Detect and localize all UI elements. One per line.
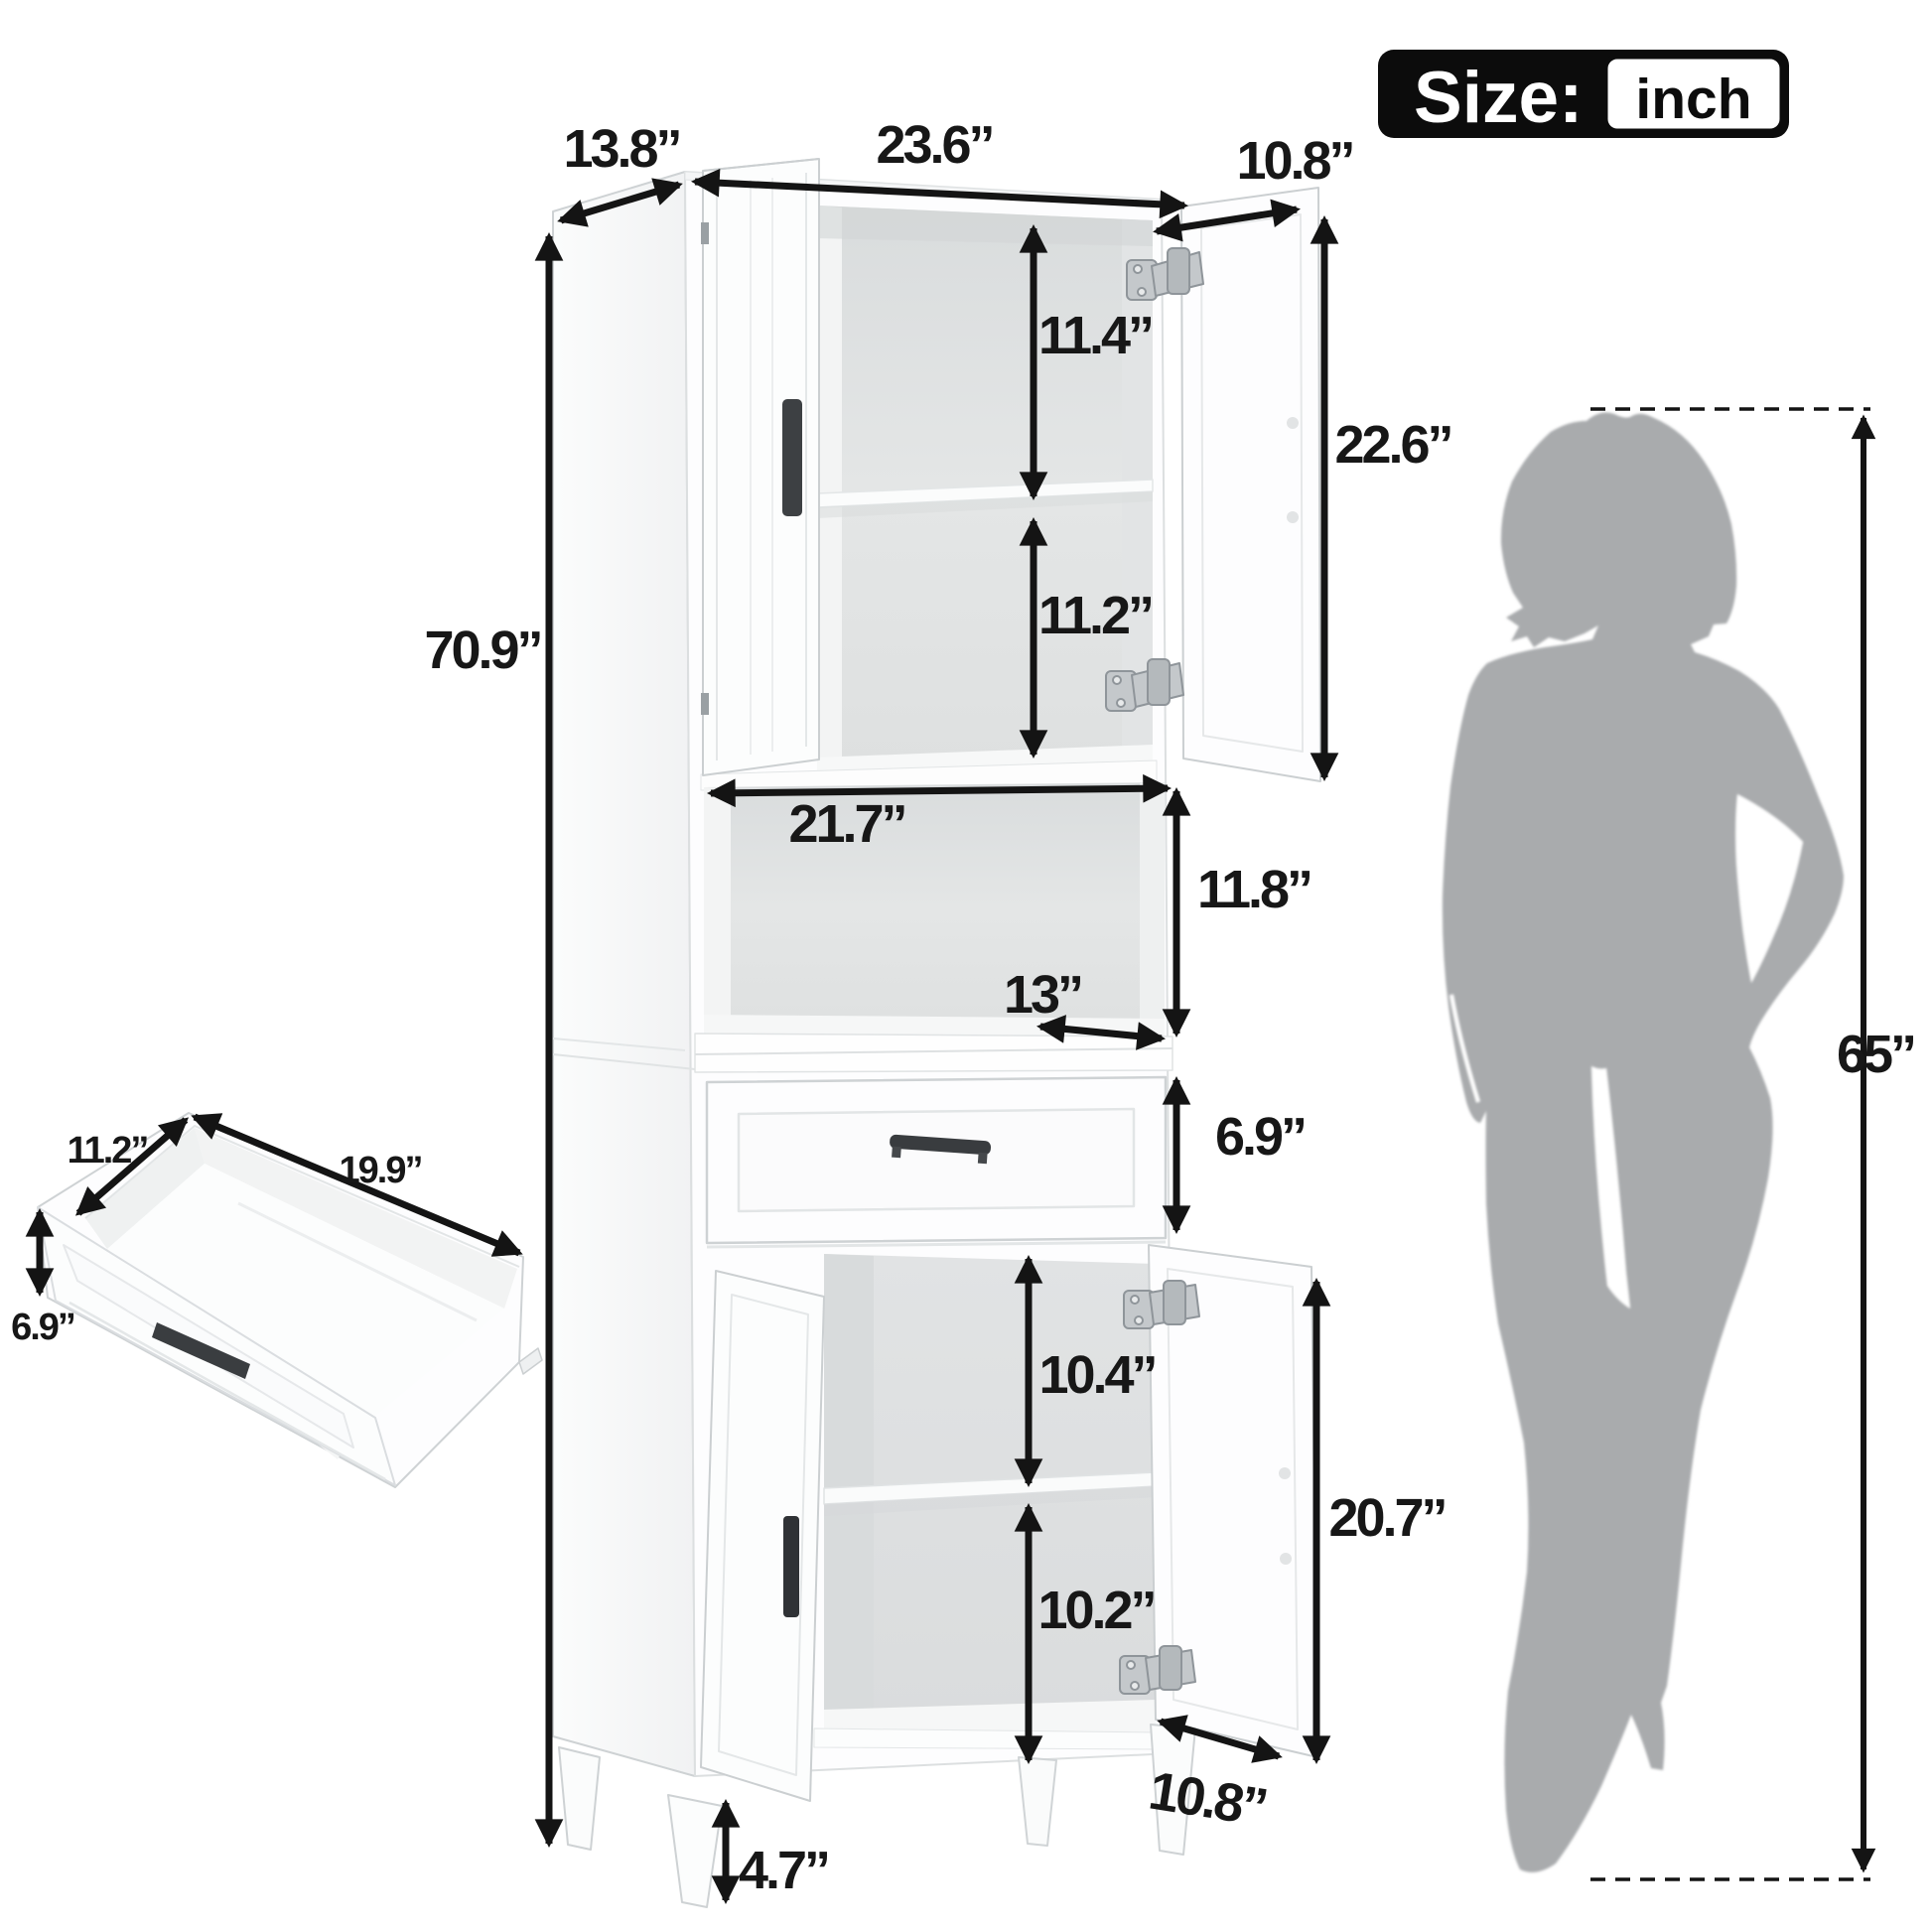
svg-text:4.7”: 4.7” <box>739 1841 828 1900</box>
svg-text:6.9”: 6.9” <box>1215 1107 1305 1167</box>
svg-text:65”: 65” <box>1837 1025 1914 1084</box>
svg-text:Size:: Size: <box>1414 58 1583 138</box>
svg-text:13”: 13” <box>1004 965 1081 1025</box>
svg-text:11.2”: 11.2” <box>1038 586 1152 645</box>
svg-text:10.4”: 10.4” <box>1038 1345 1155 1405</box>
svg-text:19.9”: 19.9” <box>340 1150 422 1191</box>
svg-text:10.8”: 10.8” <box>1236 131 1352 191</box>
svg-text:11.8”: 11.8” <box>1197 860 1311 919</box>
svg-text:6.9”: 6.9” <box>11 1307 74 1348</box>
svg-text:21.7”: 21.7” <box>788 794 904 854</box>
svg-text:23.6”: 23.6” <box>876 115 992 175</box>
svg-text:20.7”: 20.7” <box>1328 1488 1445 1548</box>
svg-text:inch: inch <box>1635 68 1751 131</box>
svg-text:11.4”: 11.4” <box>1038 306 1152 365</box>
svg-text:11.2”: 11.2” <box>68 1130 148 1172</box>
svg-text:22.6”: 22.6” <box>1334 415 1450 475</box>
svg-text:10.2”: 10.2” <box>1037 1581 1154 1640</box>
svg-text:13.8”: 13.8” <box>563 119 679 179</box>
svg-text:70.9”: 70.9” <box>424 621 540 680</box>
